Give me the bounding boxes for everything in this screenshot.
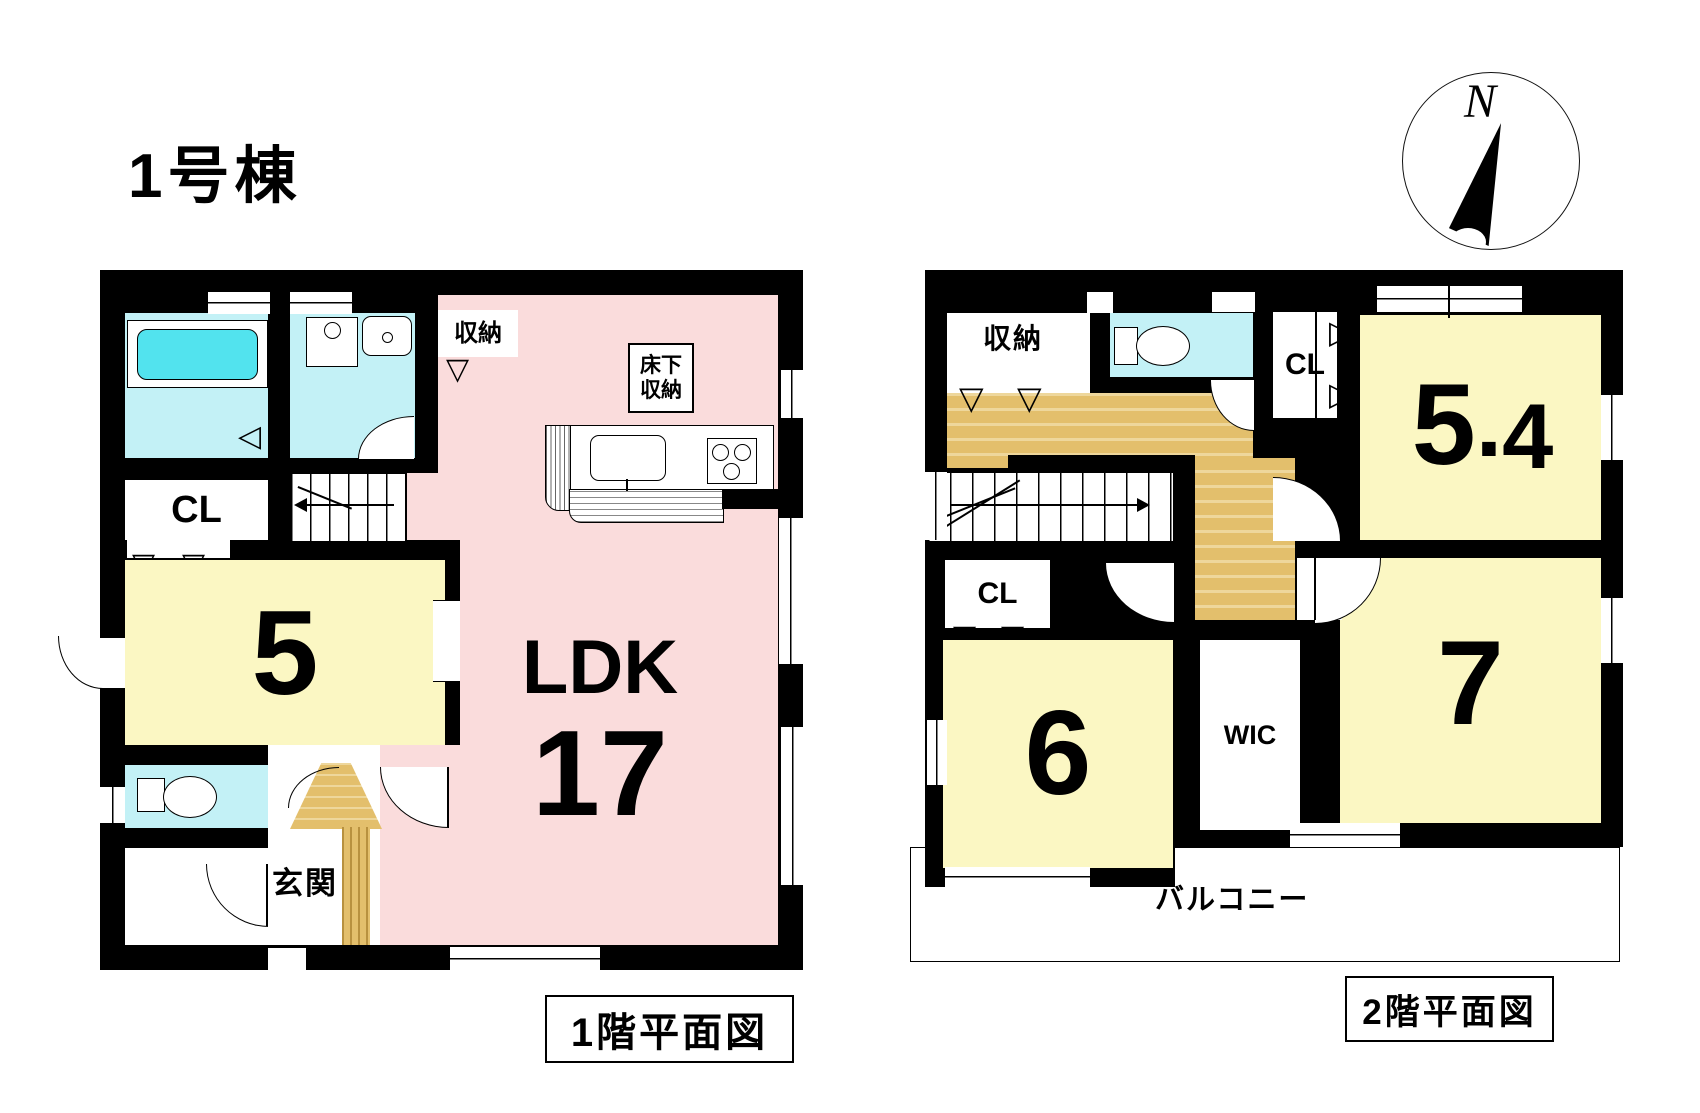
stove-burner	[734, 444, 751, 461]
closet-upper-divider	[1315, 312, 1317, 418]
window	[927, 720, 947, 785]
entrance-floor-band	[342, 827, 370, 945]
storage-door-wedge-icon: ▽	[446, 355, 469, 385]
underfloor-storage-box: 床下 収納	[628, 343, 694, 413]
ldk-label-wrap: LDK 17	[460, 630, 740, 870]
wic-door-wedge-icon: ▷	[1303, 678, 1329, 712]
floor2-plan: 収納 ▽ ▽ CL ▷ ▷ 5 . 4	[925, 270, 1623, 962]
bath-door-wedge-icon: ◁	[238, 422, 261, 452]
floor2-caption-box: 2階平面図	[1345, 976, 1554, 1042]
floor1-plan: ◁ 収納 ▽ 床下 収納	[100, 270, 803, 970]
underfloor-storage-line1: 床下	[640, 353, 682, 378]
wic-label: WIC	[1224, 722, 1276, 749]
washroom-sink	[362, 316, 412, 356]
room-closet-upper-f2: CL	[1273, 312, 1337, 418]
washroom-sink-drain	[382, 332, 393, 343]
toilet-f2-tank	[1114, 327, 1138, 365]
floor1-caption-box: 1階平面図	[545, 995, 794, 1063]
room-closet-f1: CL	[125, 480, 268, 540]
wic-door-wedge-icon: ▷	[1303, 756, 1329, 790]
window	[1290, 823, 1400, 847]
bedroom6-label: 6	[1025, 693, 1092, 813]
window	[290, 292, 352, 314]
storage-f2-wedge-icon: ▽	[959, 382, 984, 414]
kitchen-counter-front	[569, 489, 724, 523]
toilet-f2-bowl	[1136, 326, 1190, 366]
bedroom54-decimal: 4	[1502, 391, 1553, 483]
bedroom6-label-wrap: 6	[943, 655, 1173, 850]
floorplan-page: 1号棟 N ◁ 収納 ▽	[0, 0, 1700, 1113]
kitchen-faucet	[626, 479, 628, 491]
bedroom5-label-wrap: 5	[125, 570, 445, 735]
window	[1377, 286, 1522, 312]
window	[779, 518, 803, 664]
compass: N	[1402, 72, 1578, 248]
closet-upper-wedge-icon: ▷	[1329, 378, 1354, 410]
room-storage-f1: 収納	[438, 310, 518, 357]
ldk-name-label: LDK	[460, 630, 740, 706]
room-wic: WIC	[1200, 640, 1300, 830]
storage-f1-label: 収納	[454, 322, 502, 346]
storage-f2-wedge-icon: ▽	[1017, 382, 1042, 414]
window	[450, 947, 600, 970]
entrance-label: 玄関	[272, 868, 338, 899]
toilet-f1-tank	[137, 778, 165, 812]
ldk-size-label: 17	[460, 712, 740, 834]
kitchen-stove	[707, 438, 757, 484]
bedroom7-door-leaf	[1314, 558, 1316, 620]
bedroom54-dot: .	[1476, 377, 1502, 472]
room-ldk-stair-side	[405, 473, 460, 540]
balcony-label: バルコニー	[1155, 886, 1309, 915]
window	[100, 787, 125, 823]
kitchen-sink	[590, 435, 666, 481]
washing-machine-drum	[324, 322, 341, 339]
stove-burner	[723, 463, 740, 480]
bedroom5-doorway	[433, 600, 460, 682]
window	[1212, 292, 1255, 312]
bedroom7-label: 7	[1437, 623, 1504, 743]
window	[945, 867, 1090, 887]
room-closet-mid-f2: CL	[945, 560, 1050, 628]
bedroom54-whole: 5	[1412, 368, 1476, 483]
kitchen-wall-stub	[722, 489, 778, 509]
window	[208, 292, 270, 314]
bedroom7-label-wrap: 7	[1340, 575, 1601, 790]
window-tick	[1448, 278, 1450, 318]
kitchen-counter-side	[545, 425, 571, 511]
window	[1601, 598, 1623, 663]
side-door-arc	[58, 636, 103, 689]
storage-f2-label: 収納	[983, 325, 1043, 353]
stairs-f2-wall-stub	[1008, 455, 1195, 472]
window	[1087, 292, 1113, 313]
closet-upper-wedge-icon: ▷	[1329, 316, 1354, 348]
window	[781, 370, 803, 418]
bedroom5-label: 5	[252, 593, 319, 713]
page-title: 1号棟	[128, 146, 301, 208]
window	[925, 472, 947, 540]
floor1-caption: 1階平面図	[571, 1000, 768, 1058]
compass-north-label: N	[1464, 78, 1496, 126]
bedroom54-label-wrap: 5 . 4	[1370, 330, 1595, 505]
underfloor-storage-line2: 収納	[640, 378, 682, 403]
side-door-gap	[100, 638, 125, 688]
entrance-door-leaf	[447, 767, 449, 827]
closet-f1-label: CL	[171, 491, 222, 529]
closet-upper-label: CL	[1285, 350, 1325, 380]
stove-burner	[712, 444, 729, 461]
floor2-caption: 2階平面図	[1362, 984, 1536, 1035]
toilet-f1-bowl	[163, 776, 217, 818]
washing-machine	[306, 317, 358, 367]
bathtub	[137, 329, 258, 380]
window	[781, 727, 805, 885]
window	[1601, 395, 1623, 460]
entrance-outside-step	[268, 948, 306, 970]
closet-mid-label: CL	[978, 579, 1018, 609]
